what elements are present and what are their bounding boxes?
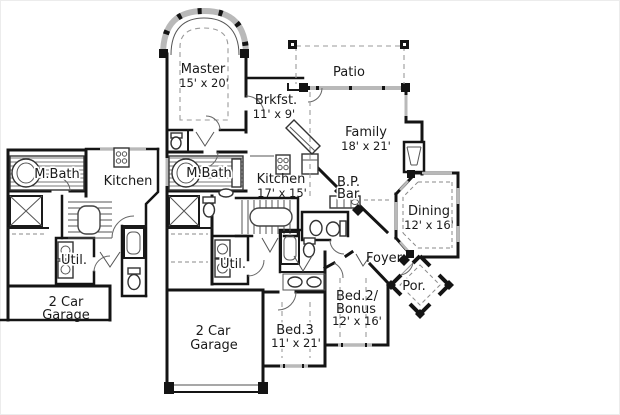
room-label-family: Family [345,125,387,140]
mbath-shower [169,196,199,226]
room-dims-kitchen: 17' x 15' [257,186,307,200]
garage-door [164,382,268,394]
mbath-toilet [203,197,215,217]
master-bay-window [159,11,249,58]
room-label-kitchen: Kitchen [257,172,306,187]
room-label-util: Util. [220,257,246,272]
room-label-left-kitchen: Kitchen [104,174,153,189]
room-label-brkfst: Brkfst. [255,93,297,108]
room-label-left-util: Util. [61,253,87,268]
room-dims-family: 18' x 21' [341,139,391,153]
main-plan: Master 15' x 20' Patio Brkfst. 11' x 9' … [159,11,458,394]
room-label-left-mbath: M.Bath [34,167,80,182]
master-wc [171,132,214,149]
room-label-mbath: M.Bath [186,166,232,181]
room-dims-master: 15' x 20' [179,76,229,90]
powder-bath [310,221,346,255]
room-dims-brkfst: 11' x 9' [253,107,295,121]
room-dims-bed2: 12' x 16' [332,314,382,328]
room-label-patio: Patio [333,65,365,80]
left-stove-icon [114,148,129,167]
family-window-wall [299,83,410,92]
room-label-garage-2: Garage [190,338,238,353]
room-label-master: Master [181,62,226,77]
room-label-foyer: Foyer [366,251,403,266]
left-shower [10,196,42,226]
mbath-sink [219,189,233,197]
room-dims-bed3: 11' x 21' [271,336,321,350]
room-label-dining: Dining [408,204,450,219]
floorplan-svg: M.Bath Kitchen Util. 2 Car Garage [0,0,620,415]
room-label-porch: Por. [402,279,426,294]
room-label-left-garage-2: Garage [42,308,90,323]
room-label-bar: Bar [337,187,360,202]
closet-shelves [171,234,208,262]
floorplan-canvas: M.Bath Kitchen Util. 2 Car Garage [0,0,620,415]
room-dims-dining: 12' x 16' [404,218,454,232]
room-label-garage-1: 2 Car [196,324,231,339]
left-plan: M.Bath Kitchen Util. 2 Car Garage [0,148,158,323]
left-bath-fixtures [124,228,144,290]
fireplace [404,142,424,172]
